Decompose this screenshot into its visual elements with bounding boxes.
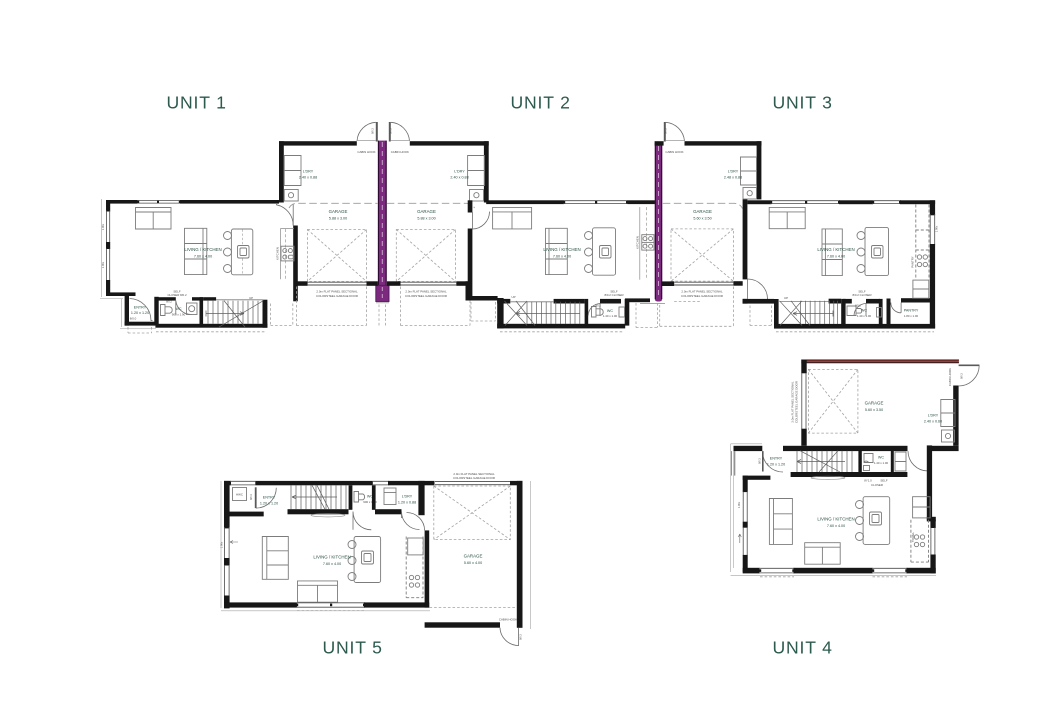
svg-text:5.60 x 4.00: 5.60 x 4.00 [464,561,482,565]
svg-text:2.40 x 0.88: 2.40 x 0.88 [450,176,468,180]
svg-text:LIVING / KITCHEN: LIVING / KITCHEN [543,247,580,252]
svg-text:2.40 x 0.60: 2.40 x 0.60 [924,420,942,424]
svg-text:CABIN HOOK: CABIN HOOK [391,150,409,154]
svg-text:CABIN HOOK: CABIN HOOK [499,618,517,622]
svg-text:L'DRY: L'DRY [402,495,413,499]
svg-text:COLORSTEEL GARAGE DOOR: COLORSTEEL GARAGE DOOR [453,476,495,480]
svg-text:8Y1.0: 8Y1.0 [864,479,872,483]
svg-text:8/0.3: 8/0.3 [249,494,253,500]
svg-text:1.40 x 1.00: 1.40 x 1.00 [603,314,618,318]
svg-text:COLORSTEEL GARAGE DOOR: COLORSTEEL GARAGE DOOR [795,381,799,423]
svg-text:8/0.3: 8/0.3 [519,634,523,640]
svg-text:COLORSTEEL GARAGE DOOR: COLORSTEEL GARAGE DOOR [405,294,447,298]
svg-text:UNIT 5: UNIT 5 [323,637,383,657]
svg-text:PANTRY: PANTRY [911,256,915,268]
svg-text:8/0.2 CLOSER: 8/0.2 CLOSER [852,293,871,297]
svg-text:8/0.0: 8/0.0 [130,317,137,321]
svg-text:ENTRY: ENTRY [770,457,783,461]
svg-text:8/0.2: 8/0.2 [166,300,172,304]
svg-text:8/0.2: 8/0.2 [595,304,601,308]
svg-text:CABIN HOOK: CABIN HOOK [665,150,683,154]
svg-text:1.96x: 1.96x [220,541,224,548]
svg-text:GARAGE: GARAGE [464,554,483,559]
svg-text:1.96x: 1.96x [935,225,939,232]
svg-text:CABIN HOOK: CABIN HOOK [357,150,375,154]
svg-text:KITCHEN: KITCHEN [276,247,280,260]
svg-text:WC: WC [607,309,613,313]
svg-text:KITCHEN: KITCHEN [636,236,640,249]
svg-text:UNIT 2: UNIT 2 [511,92,571,112]
svg-text:L'DRY: L'DRY [928,414,939,418]
svg-text:COLORSTEEL GARAGE DOOR: COLORSTEEL GARAGE DOOR [316,294,358,298]
svg-text:1.40 x 1.00: 1.40 x 1.00 [874,461,889,465]
svg-text:1.20 x 1.20: 1.20 x 1.20 [131,311,149,315]
svg-text:UNIT 1: UNIT 1 [167,92,227,112]
svg-text:7.60 x 4.00: 7.60 x 4.00 [553,255,571,259]
svg-text:5.60 x 3.50: 5.60 x 3.50 [865,408,883,412]
svg-text:GARAGE: GARAGE [865,401,884,406]
svg-text:1.20 x 1.20: 1.20 x 1.20 [260,501,278,505]
svg-text:1.40 x 1.00: 1.40 x 1.00 [857,314,872,318]
svg-text:900 x 1.90: 900 x 1.90 [172,313,186,317]
svg-text:2.48 x 0.88: 2.48 x 0.88 [724,176,742,180]
svg-text:5.88 x 3.00: 5.88 x 3.00 [329,216,347,220]
svg-text:8/0.3: 8/0.3 [960,373,964,379]
svg-text:LIVING / KITCHEN: LIVING / KITCHEN [817,517,854,522]
svg-text:8/0.3: 8/0.3 [370,128,374,134]
svg-text:7.60 x 4.00: 7.60 x 4.00 [827,255,845,259]
svg-text:1.96x: 1.96x [101,223,105,230]
svg-text:ENTRY: ENTRY [134,306,147,310]
svg-text:1.96x: 1.96x [101,261,105,268]
svg-text:UP: UP [511,295,515,299]
svg-text:COLORSTEEL GARAGE DOOR: COLORSTEEL GARAGE DOOR [681,294,723,298]
svg-text:WC: WC [175,307,181,311]
svg-text:LIVING / KITCHEN: LIVING / KITCHEN [313,555,350,560]
svg-text:CABIN HOOK: CABIN HOOK [948,368,952,386]
svg-text:WC: WC [878,456,884,460]
svg-text:8/0.2 CLOSER: 8/0.2 CLOSER [604,293,623,297]
svg-text:8/0.2: 8/0.2 [855,304,861,308]
svg-text:GARAGE: GARAGE [693,209,712,214]
svg-text:GARAGE: GARAGE [329,209,348,214]
svg-text:1.20 x 0.88: 1.20 x 0.88 [398,501,416,505]
svg-text:L'DRY: L'DRY [454,170,465,174]
svg-text:SELF: SELF [880,479,887,483]
svg-text:LIVING / KITCHEN: LIVING / KITCHEN [184,247,221,252]
svg-text:7.60 x 4.00: 7.60 x 4.00 [194,255,212,259]
svg-text:HWC: HWC [236,493,243,497]
svg-text:8/0.3: 8/0.3 [757,458,761,464]
svg-text:WC: WC [861,309,867,313]
svg-text:1.80 x 1.00: 1.80 x 1.00 [904,314,919,318]
svg-text:7.60 x 4.00: 7.60 x 4.00 [827,524,845,528]
svg-text:L'DRY: L'DRY [728,170,739,174]
svg-text:CLOSER: CLOSER [871,483,883,487]
svg-text:L'DRY: L'DRY [303,170,314,174]
svg-text:1.20 x 1.20: 1.20 x 1.20 [767,462,785,466]
svg-text:LIVING / KITCHEN: LIVING / KITCHEN [817,247,854,252]
svg-text:ENTRY: ENTRY [263,496,276,500]
svg-text:5.88 x 3.00: 5.88 x 3.00 [417,216,435,220]
svg-text:UNIT 3: UNIT 3 [773,92,833,112]
svg-text:UNIT 4: UNIT 4 [773,637,833,657]
svg-text:8/0.3: 8/0.3 [663,128,667,134]
svg-text:PANTRY: PANTRY [904,309,919,313]
svg-text:7.60 x 4.00: 7.60 x 4.00 [323,562,341,566]
svg-text:UP: UP [784,296,788,300]
svg-text:GARAGE: GARAGE [417,209,436,214]
svg-text:2.40 x 0.88: 2.40 x 0.88 [299,176,317,180]
svg-text:5.60 x 3.50: 5.60 x 3.50 [693,216,711,220]
svg-text:UP: UP [249,296,253,300]
svg-text:CLOSER 8/0.2: CLOSER 8/0.2 [167,293,187,297]
svg-text:8/0.3: 8/0.3 [389,128,393,134]
svg-text:1.96x: 1.96x [737,501,741,508]
